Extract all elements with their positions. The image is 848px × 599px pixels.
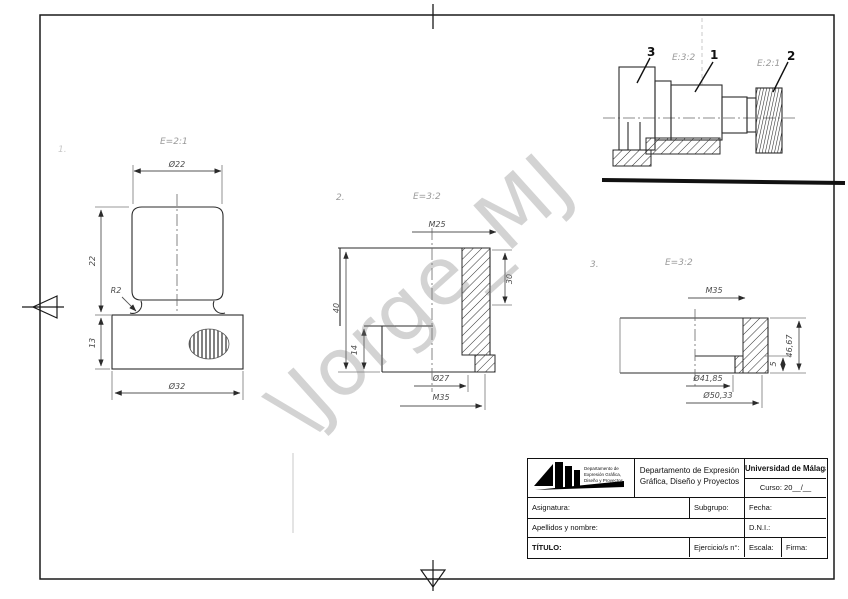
knurl-patch (189, 329, 229, 359)
logo-text-line3: Diseño y Proyectos (584, 478, 624, 483)
title-block: Departamento de Expresión Gráfica, Diseñ… (527, 458, 828, 559)
view1-scale: E=2:1 (160, 137, 188, 147)
subject-label: Asignatura: (528, 498, 690, 519)
view1-number: 1. (58, 145, 67, 155)
view-1: 1. E=2:1 Ø22 22 13 R2 Ø32 (58, 137, 243, 400)
view2-dim-left: 40 (332, 303, 341, 313)
leader-line-part1 (695, 62, 713, 92)
name-label: Apellidos y nombre: (528, 519, 745, 538)
view3-dim-bottom-2: Ø50,33 (702, 390, 732, 400)
knurled-knob (756, 88, 782, 153)
leader-line-part3 (637, 58, 650, 83)
scale-label: Escala: (745, 538, 782, 557)
assembly-scale-note-1: E:3:2 (672, 53, 695, 63)
part-number-3: 3 (647, 45, 655, 59)
view3-number: 3. (590, 260, 599, 270)
section-hatch (743, 318, 768, 373)
date-label: Fecha: (745, 498, 826, 519)
view1-dim-radius: R2 (111, 286, 122, 295)
department-line1: Departamento de Expresión (635, 466, 744, 477)
section-hatch (646, 138, 720, 154)
part-number-1: 1 (710, 48, 718, 62)
logo-cell: Departamento de Expresión Gráfica, Diseñ… (528, 459, 635, 498)
section-hatch (613, 150, 651, 166)
view1-dim-bottom: Ø32 (168, 381, 185, 391)
view1-dim-height-lower: 13 (88, 338, 97, 348)
id-label: D.N.I.: (745, 519, 826, 538)
section-hatch (475, 355, 495, 372)
bottom-centering-mark (421, 560, 445, 591)
view2-scale: E=3:2 (413, 192, 441, 202)
view3-dim-right: 46,67 (785, 334, 794, 358)
university-cell: Universidad de Málaga (745, 459, 826, 479)
assembly-drawing: 3 1 2 E:3:2 E:2:1 (602, 18, 845, 183)
view1-dim-height-upper: 22 (88, 256, 97, 266)
view2-dim-bottom-1: Ø27 (432, 373, 450, 383)
signature-label: Firma: (782, 538, 829, 557)
assembly-scale-note-2: E:2:1 (757, 59, 780, 69)
view-3: 3. E=3:2 M35 46,67 5 Ø41,85 Ø50,33 (590, 258, 806, 408)
view1-dim-top: Ø22 (168, 159, 185, 169)
view3-dim-top: M35 (705, 286, 722, 295)
logo-text-line2: Expresión Gráfica, (584, 472, 621, 477)
view2-dim-right: 30 (505, 274, 514, 284)
part-number-2: 2 (787, 49, 795, 63)
view2-dim-inner: 14 (350, 345, 359, 355)
section-hatch (462, 248, 490, 355)
course-cell: Curso: 20__/__ (745, 479, 826, 498)
view2-dim-bottom-2: M35 (432, 393, 449, 402)
department-line2: Gráfica, Diseño y Proyectos (635, 477, 744, 488)
view-2: 2. E=3:2 M25 40 14 30 Ø27 M35 (332, 192, 514, 410)
view2-number: 2. (336, 193, 345, 203)
view2-dim-top: M25 (428, 220, 445, 229)
subgroup-label: Subgrupo: (690, 498, 745, 519)
scan-fold-line (602, 180, 845, 183)
title-label: TÍTULO: (528, 538, 690, 557)
drawing-sheet: 3 1 2 E:3:2 E:2:1 1. E=2:1 Ø22 22 (0, 0, 848, 599)
exercise-label: Ejercicio/s n°: (690, 538, 745, 557)
view3-scale: E=3:2 (665, 258, 693, 268)
left-centering-mark (22, 296, 64, 318)
view3-dim-bottom-1: Ø41,85 (692, 373, 722, 383)
logo-text-line1: Departamento de (584, 466, 619, 471)
department-logo: Departamento de Expresión Gráfica, Diseñ… (532, 461, 632, 494)
section-hatch (735, 356, 743, 373)
department-name-cell: Departamento de Expresión Gráfica, Diseñ… (635, 459, 745, 498)
view3-dim-step: 5 (769, 361, 778, 366)
